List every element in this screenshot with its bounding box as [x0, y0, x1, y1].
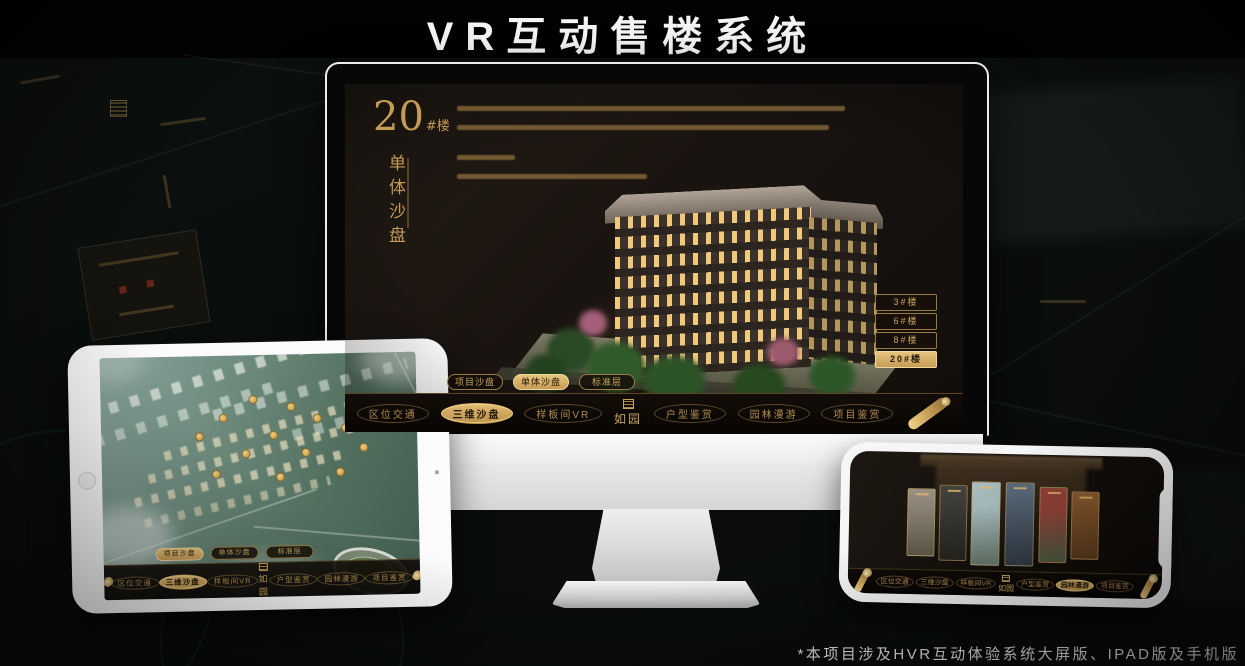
- nav-item-garden-roam-active[interactable]: 园林漫游: [1056, 579, 1094, 592]
- view-tab-single[interactable]: 单体沙盘: [513, 374, 569, 390]
- nav-item-garden-roam[interactable]: 园林漫游: [317, 570, 365, 586]
- building-badge[interactable]: [336, 467, 345, 476]
- ruyuan-logo: 如园: [998, 574, 1014, 593]
- page-title: VR互动售楼系统: [0, 4, 1245, 62]
- logo-icon: [259, 562, 268, 570]
- tablet-tab-project[interactable]: 项目沙盘: [155, 547, 203, 561]
- plaque-text-dash: [119, 305, 174, 317]
- monitor-nav-bar: 区位交通 三维沙盘 样板间VR 如园 户型鉴赏 园林漫游 项目鉴赏: [345, 393, 963, 432]
- tablet-tab-floor[interactable]: 标准层: [265, 545, 313, 559]
- menu-panel[interactable]: [938, 485, 968, 562]
- logo-text: 如园: [998, 582, 1014, 593]
- nav-item-location[interactable]: 区位交通: [357, 403, 429, 424]
- building-badge[interactable]: [219, 414, 228, 423]
- nav-item-project-view[interactable]: 项目鉴赏: [821, 403, 893, 424]
- monitor-screen: 20#楼 单体沙盘 3#楼 6#楼 8#楼 20#楼 项目沙盘 单体沙盘 标准层…: [345, 84, 963, 432]
- menu-panel[interactable]: [906, 488, 935, 557]
- ruyuan-logo: 如园: [258, 562, 270, 597]
- map-label-dash: [163, 174, 172, 208]
- nav-item-unit-view[interactable]: 户型鉴赏: [269, 571, 317, 587]
- building-badge[interactable]: [269, 431, 278, 440]
- ruyuan-logo: 如园: [614, 399, 642, 427]
- nav-item-sandtable-active[interactable]: 三维沙盘: [159, 574, 207, 590]
- monitor-stand-neck: [592, 509, 720, 587]
- building-number-suffix: #楼: [426, 119, 450, 134]
- nav-item-sandtable[interactable]: 三维沙盘: [915, 576, 953, 589]
- building-select-button-active[interactable]: 20#楼: [875, 351, 937, 368]
- building-select-button[interactable]: 6#楼: [875, 313, 937, 330]
- nav-item-project-view[interactable]: 项目鉴赏: [365, 569, 413, 585]
- vertical-title-rule: [407, 158, 409, 228]
- map-marker-icon: [110, 100, 127, 117]
- view-tab-floor[interactable]: 标准层: [579, 374, 635, 390]
- phone-notch: [1158, 488, 1173, 568]
- description-text-line: [457, 125, 829, 130]
- red-seal: [119, 286, 127, 294]
- nav-item-sandtable-active[interactable]: 三维沙盘: [441, 403, 513, 424]
- road-line: [253, 526, 420, 543]
- logo-text: 如园: [258, 571, 270, 597]
- view-tab-project[interactable]: 项目沙盘: [447, 374, 503, 390]
- description-text-line: [457, 155, 515, 160]
- menu-panel[interactable]: [970, 481, 1001, 566]
- certificate-plaque: [77, 229, 210, 341]
- nav-item-showroom-vr[interactable]: 样板间VR: [207, 573, 259, 589]
- nav-item-unit-view[interactable]: 户型鉴赏: [654, 403, 726, 424]
- red-seal: [146, 279, 154, 287]
- phone-device: 区位交通 三维沙盘 样板间VR 如园 户型鉴赏 园林漫游 项目鉴赏: [838, 442, 1173, 609]
- camera-dot: [435, 470, 439, 474]
- building-badge[interactable]: [301, 448, 310, 457]
- footnote-text: *本项目涉及HVR互动体验系统大屏版、IPAD版及手机版: [798, 643, 1239, 664]
- logo-text: 如园: [614, 410, 642, 427]
- building-number: 20: [373, 94, 424, 140]
- scroll-handle-icon[interactable]: [906, 395, 950, 431]
- poster-canvas: VR互动售楼系统 20#楼 单体沙盘: [0, 0, 1245, 666]
- plaque-text-dash: [99, 251, 178, 266]
- nav-item-showroom-vr[interactable]: 样板间VR: [955, 577, 996, 590]
- vertical-title: 单体沙盘: [383, 154, 408, 250]
- map-label-dash: [160, 117, 206, 126]
- tablet-tab-single[interactable]: 单体沙盘: [210, 546, 258, 560]
- map-label-dash: [20, 75, 60, 85]
- phone-screen: 区位交通 三维沙盘 样板间VR 如园 户型鉴赏 园林漫游 项目鉴赏: [848, 451, 1165, 600]
- aerial-photo-band: [980, 76, 1245, 244]
- building-badge[interactable]: [195, 432, 204, 441]
- tablet-nav-bar: 区位交通 三维沙盘 样板间VR 如园 户型鉴赏 园林漫游 项目鉴赏: [104, 559, 421, 601]
- scroll-handle-icon[interactable]: [1139, 575, 1156, 600]
- menu-panel[interactable]: [1070, 491, 1099, 560]
- nav-item-project-view[interactable]: 项目鉴赏: [1096, 580, 1134, 593]
- nav-item-garden-roam[interactable]: 园林漫游: [738, 403, 810, 424]
- building-heading: 20#楼: [373, 96, 450, 138]
- building-badge[interactable]: [359, 443, 368, 452]
- menu-panel[interactable]: [1038, 487, 1068, 564]
- nav-item-unit-view[interactable]: 户型鉴赏: [1016, 578, 1054, 591]
- estate-building-row: [144, 476, 331, 528]
- building-badge[interactable]: [276, 472, 285, 481]
- logo-icon: [1002, 574, 1010, 581]
- building-select-button[interactable]: 3#楼: [875, 294, 937, 311]
- phone-nav-bar: 区位交通 三维沙盘 样板间VR 如园 户型鉴赏 园林漫游 项目鉴赏: [848, 568, 1162, 600]
- building-badge[interactable]: [286, 402, 295, 411]
- fog-cloud: [100, 352, 147, 385]
- building-select-button[interactable]: 8#楼: [875, 332, 937, 349]
- menu-panel[interactable]: [1004, 482, 1035, 567]
- logo-icon: [623, 399, 634, 409]
- monitor-stand-base: [552, 581, 760, 608]
- nav-item-location[interactable]: 区位交通: [876, 575, 914, 588]
- nav-item-showroom-vr[interactable]: 样板间VR: [524, 403, 602, 424]
- description-text-line: [457, 174, 647, 179]
- map-road-line: [0, 85, 370, 217]
- nav-item-location[interactable]: 区位交通: [111, 575, 159, 591]
- map-label-dash: [1040, 300, 1086, 303]
- scroll-handle-icon[interactable]: [853, 569, 870, 594]
- description-text-line: [457, 106, 845, 111]
- home-button[interactable]: [78, 471, 96, 489]
